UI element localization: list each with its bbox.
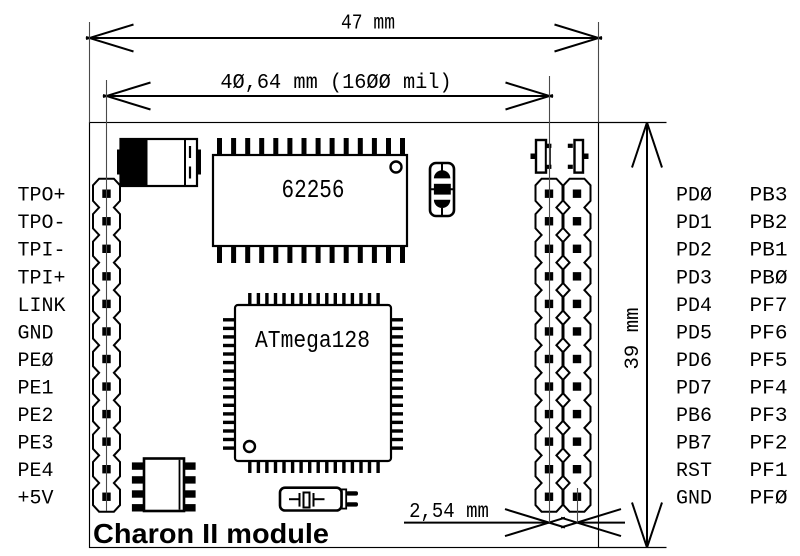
svg-text:PD5: PD5 xyxy=(676,322,712,345)
svg-text:PD3: PD3 xyxy=(676,267,712,290)
svg-text:PBØ: PBØ xyxy=(750,267,788,290)
svg-text:PE1: PE1 xyxy=(18,377,54,400)
svg-text:PF4: PF4 xyxy=(750,377,788,400)
svg-text:PF2: PF2 xyxy=(750,433,788,456)
svg-text:PD6: PD6 xyxy=(676,350,712,373)
svg-text:TPO-: TPO- xyxy=(18,212,66,235)
svg-text:PD1: PD1 xyxy=(676,212,712,235)
svg-text:LINK: LINK xyxy=(18,295,66,318)
svg-text:TPO+: TPO+ xyxy=(18,185,66,208)
svg-text:PF6: PF6 xyxy=(750,322,788,345)
svg-text:PDØ: PDØ xyxy=(676,185,712,208)
svg-text:RST: RST xyxy=(676,460,712,483)
svg-text:2,54 mm: 2,54 mm xyxy=(409,499,489,523)
svg-text:ATmega128: ATmega128 xyxy=(255,327,370,355)
svg-text:PB1: PB1 xyxy=(750,240,788,263)
svg-text:PB3: PB3 xyxy=(750,185,788,208)
svg-text:PB2: PB2 xyxy=(750,212,788,235)
svg-text:PE4: PE4 xyxy=(18,460,54,483)
svg-text:47 mm: 47 mm xyxy=(341,11,395,35)
svg-text:GND: GND xyxy=(676,488,712,511)
svg-text:+5V: +5V xyxy=(18,488,54,511)
svg-text:PE2: PE2 xyxy=(18,405,54,428)
svg-text:PF1: PF1 xyxy=(750,460,788,483)
svg-text:Charon II module: Charon II module xyxy=(93,518,329,549)
svg-text:62256: 62256 xyxy=(282,177,345,205)
svg-text:TPI-: TPI- xyxy=(18,240,66,263)
svg-text:39 mm: 39 mm xyxy=(622,307,645,369)
svg-text:PE3: PE3 xyxy=(18,433,54,456)
svg-text:PB7: PB7 xyxy=(676,433,712,456)
svg-text:PFØ: PFØ xyxy=(750,488,788,511)
svg-text:PEØ: PEØ xyxy=(18,350,54,373)
svg-text:TPI+: TPI+ xyxy=(18,267,66,290)
svg-text:PD2: PD2 xyxy=(676,240,712,263)
svg-text:4Ø,64 mm (16ØØ mil): 4Ø,64 mm (16ØØ mil) xyxy=(220,72,451,96)
svg-text:PD7: PD7 xyxy=(676,377,712,400)
svg-text:PF3: PF3 xyxy=(750,405,788,428)
svg-text:PD4: PD4 xyxy=(676,295,712,318)
svg-text:GND: GND xyxy=(18,322,54,345)
svg-text:PB6: PB6 xyxy=(676,405,712,428)
svg-text:PF7: PF7 xyxy=(750,295,788,318)
svg-text:PF5: PF5 xyxy=(750,350,788,373)
